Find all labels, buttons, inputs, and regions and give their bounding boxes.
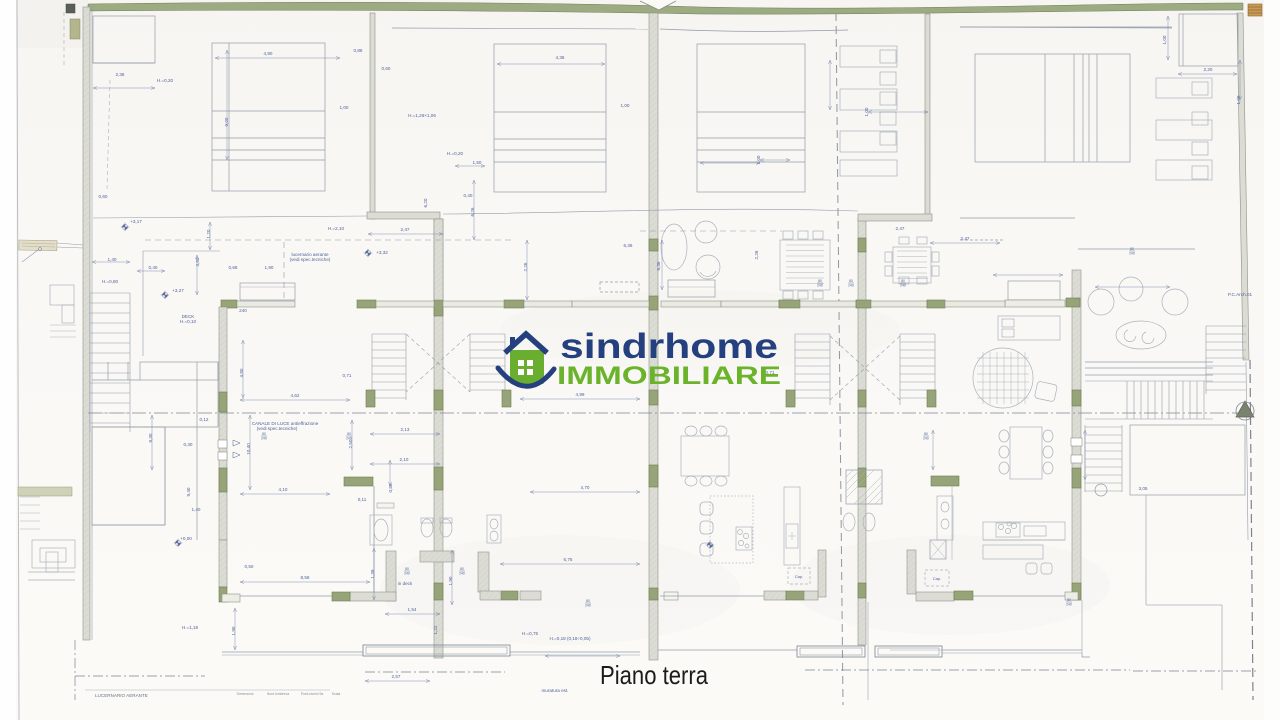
svg-text:240: 240 bbox=[239, 308, 247, 313]
svg-text:1,00: 1,00 bbox=[340, 105, 349, 110]
svg-text:Posti uterini 9a: Posti uterini 9a bbox=[301, 692, 324, 696]
svg-text:0,86: 0,86 bbox=[354, 48, 363, 53]
svg-text:9,40: 9,40 bbox=[186, 487, 191, 496]
svg-text:+3,27: +3,27 bbox=[172, 288, 184, 293]
svg-text:0,60: 0,60 bbox=[382, 66, 391, 71]
svg-text:240: 240 bbox=[1129, 252, 1135, 256]
svg-text:80: 80 bbox=[460, 567, 464, 571]
svg-text:1,00: 1,00 bbox=[1162, 35, 1167, 44]
svg-text:3,05: 3,05 bbox=[1139, 486, 1148, 491]
svg-text:H.=0,18 (0,18÷0,05): H.=0,18 (0,18÷0,05) bbox=[550, 636, 591, 641]
svg-text:4,99: 4,99 bbox=[576, 392, 585, 397]
svg-text:2,47: 2,47 bbox=[961, 236, 970, 241]
svg-text:80: 80 bbox=[262, 432, 266, 436]
svg-text:80: 80 bbox=[924, 432, 928, 436]
svg-text:H.=0,75: H.=0,75 bbox=[522, 631, 539, 636]
svg-text:80: 80 bbox=[347, 432, 351, 436]
svg-text:0,40: 0,40 bbox=[464, 193, 473, 198]
svg-text:muratura est.: muratura est. bbox=[541, 688, 568, 693]
svg-text:P.C.Arch.01: P.C.Arch.01 bbox=[1228, 292, 1253, 297]
svg-text:2,26: 2,26 bbox=[754, 250, 759, 259]
svg-text:80: 80 bbox=[901, 279, 905, 283]
svg-text:H.=1,18: H.=1,18 bbox=[182, 625, 199, 630]
svg-text:4,90: 4,90 bbox=[264, 51, 273, 56]
svg-text:0,40: 0,40 bbox=[149, 265, 158, 270]
svg-text:(vedi spec.tecniche): (vedi spec.tecniche) bbox=[257, 426, 298, 431]
svg-text:6,75: 6,75 bbox=[564, 557, 573, 562]
svg-text:240: 240 bbox=[585, 604, 591, 608]
svg-text:2,13: 2,13 bbox=[401, 427, 410, 432]
svg-text:IMMOBILIARE: IMMOBILIARE bbox=[557, 362, 781, 390]
svg-text:2,47: 2,47 bbox=[401, 227, 410, 232]
svg-text:240: 240 bbox=[817, 284, 823, 288]
svg-text:6,20: 6,20 bbox=[423, 198, 428, 207]
svg-text:+3,17: +3,17 bbox=[130, 219, 142, 224]
svg-text:1,50: 1,50 bbox=[473, 160, 482, 165]
svg-text:H.=0,20: H.=0,20 bbox=[447, 151, 464, 156]
svg-text:80: 80 bbox=[1130, 247, 1134, 251]
svg-text:Nord lombreva: Nord lombreva bbox=[267, 692, 289, 696]
svg-text:6,36: 6,36 bbox=[656, 261, 661, 270]
svg-text:80: 80 bbox=[818, 279, 822, 283]
svg-text:4,62: 4,62 bbox=[291, 393, 300, 398]
svg-text:4,36: 4,36 bbox=[556, 55, 565, 60]
svg-text:0,60: 0,60 bbox=[99, 194, 108, 199]
svg-text:Scala: Scala bbox=[332, 692, 341, 696]
svg-text:1,90: 1,90 bbox=[265, 265, 274, 270]
svg-text:+0,00: +0,00 bbox=[180, 536, 192, 541]
svg-text:0,30: 0,30 bbox=[184, 442, 193, 447]
svg-text:2,47: 2,47 bbox=[896, 226, 905, 231]
svg-text:Cap.: Cap. bbox=[795, 574, 803, 579]
svg-text:1,22: 1,22 bbox=[433, 625, 438, 634]
svg-text:240: 240 bbox=[848, 284, 854, 288]
svg-text:Cap.: Cap. bbox=[933, 576, 941, 581]
svg-text:6,36: 6,36 bbox=[624, 243, 633, 248]
svg-text:H.=1,26×1,06: H.=1,26×1,06 bbox=[408, 113, 436, 118]
svg-text:9,00: 9,00 bbox=[224, 117, 229, 126]
svg-text:Dimensioni: Dimensioni bbox=[237, 692, 254, 696]
svg-text:80: 80 bbox=[1067, 598, 1071, 602]
svg-text:LUCERNARIO AERANTE: LUCERNARIO AERANTE bbox=[95, 693, 148, 698]
svg-text:0,11: 0,11 bbox=[358, 497, 367, 502]
svg-text:1,40: 1,40 bbox=[108, 257, 117, 262]
svg-text:+3,32: +3,32 bbox=[376, 250, 388, 255]
svg-text:240: 240 bbox=[261, 437, 267, 441]
svg-text:0,68: 0,68 bbox=[229, 265, 238, 270]
svg-text:H.=2,10: H.=2,10 bbox=[328, 226, 345, 231]
svg-text:0,12: 0,12 bbox=[200, 417, 209, 422]
svg-text:240: 240 bbox=[404, 572, 410, 576]
svg-text:1,54: 1,54 bbox=[408, 607, 417, 612]
svg-text:240: 240 bbox=[900, 284, 906, 288]
svg-text:in deck: in deck bbox=[398, 581, 413, 586]
svg-text:1,00: 1,00 bbox=[621, 103, 630, 108]
svg-text:2,10: 2,10 bbox=[400, 457, 409, 462]
svg-text:2,57: 2,57 bbox=[392, 674, 401, 679]
svg-text:240: 240 bbox=[346, 437, 352, 441]
svg-text:Piano terra: Piano terra bbox=[600, 660, 708, 690]
svg-text:H.=0,80: H.=0,80 bbox=[102, 279, 119, 284]
svg-text:0,50: 0,50 bbox=[245, 564, 254, 569]
svg-text:2,20: 2,20 bbox=[1204, 67, 1213, 72]
svg-text:80: 80 bbox=[405, 567, 409, 571]
svg-text:sindrhome: sindrhome bbox=[560, 327, 778, 366]
svg-text:0,71: 0,71 bbox=[343, 373, 352, 378]
svg-text:(vedi spec.tecniche): (vedi spec.tecniche) bbox=[290, 257, 331, 262]
svg-text:240: 240 bbox=[1066, 603, 1072, 607]
svg-text:2,36: 2,36 bbox=[116, 72, 125, 77]
svg-text:240: 240 bbox=[923, 437, 929, 441]
svg-text:4,70: 4,70 bbox=[581, 485, 590, 490]
svg-text:4,10: 4,10 bbox=[279, 487, 288, 492]
svg-text:80: 80 bbox=[849, 279, 853, 283]
svg-text:240: 240 bbox=[459, 572, 465, 576]
svg-text:H.=0,10: H.=0,10 bbox=[180, 319, 197, 324]
svg-text:H.=0,20: H.=0,20 bbox=[157, 78, 174, 83]
svg-text:1,40: 1,40 bbox=[192, 507, 201, 512]
svg-text:8,58: 8,58 bbox=[301, 575, 310, 580]
svg-text:80: 80 bbox=[586, 599, 590, 603]
